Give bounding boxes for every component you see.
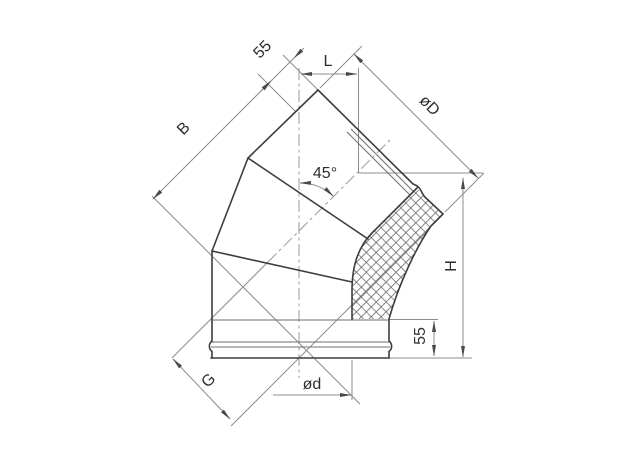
- centerlines: [268, 68, 392, 378]
- label-b: B: [174, 119, 194, 139]
- elbow-45-sandwich-drawing: B 55 L øD 45° H: [0, 0, 624, 460]
- label-socket-top: 55: [250, 37, 275, 62]
- segment-joint-upper: [248, 158, 368, 239]
- label-socket-bottom: 55: [412, 327, 429, 345]
- label-g: G: [198, 370, 219, 391]
- right-socket-edge: [389, 320, 392, 358]
- dimension-outer-diameter: øD: [354, 54, 478, 178]
- label-angle: 45°: [313, 165, 337, 182]
- label-l: L: [324, 53, 333, 70]
- label-inner-diameter: ød: [303, 376, 322, 393]
- dimension-angle-45: 45°: [300, 165, 337, 196]
- dimension-socket-top-55: 55: [250, 37, 304, 91]
- left-outline: [209, 90, 318, 358]
- dimension-g: G: [173, 359, 230, 419]
- dimension-socket-bottom-55: 55: [412, 321, 434, 356]
- dimension-l: L: [301, 53, 357, 74]
- dimension-inner-diameter: ød: [273, 376, 351, 395]
- dimension-b: B: [153, 81, 271, 199]
- label-h: H: [443, 260, 460, 272]
- dimension-h: H: [443, 178, 463, 357]
- technical-drawing-page: B 55 L øD 45° H: [0, 0, 624, 460]
- label-outer-diameter: øD: [416, 92, 443, 119]
